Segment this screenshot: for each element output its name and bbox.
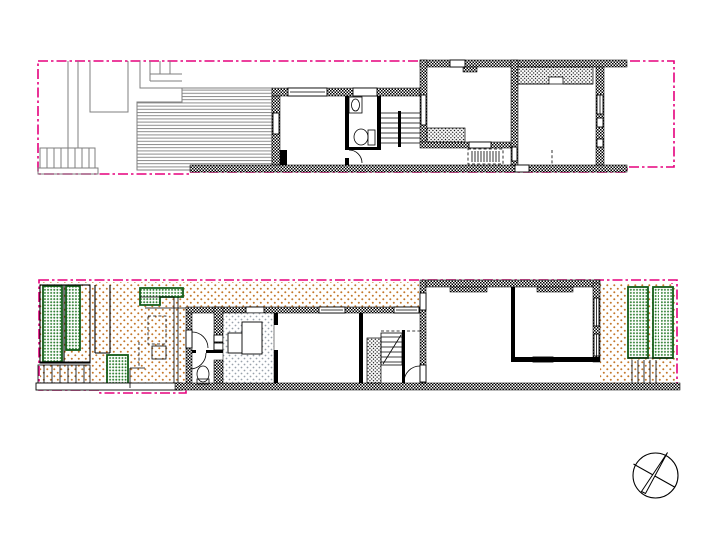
door-swing-arc [404, 366, 420, 382]
toilet-bowl [354, 129, 368, 145]
radiator-symbol [468, 149, 503, 164]
front-door-opening [186, 330, 192, 348]
staircase-upper [381, 111, 420, 147]
wc-fixtures [190, 353, 209, 384]
architectural-plan-drawing [0, 0, 720, 540]
kitchen-counter [427, 128, 465, 142]
roof-terrace [518, 67, 593, 84]
ground-floor-plan [36, 280, 680, 393]
north-arrow-compass [633, 453, 678, 499]
stair-direction-line [383, 335, 401, 364]
first-floor-plan [38, 60, 674, 174]
chimney-breast [367, 338, 381, 383]
north-needle-icon [642, 453, 668, 494]
door-swing-arc [349, 150, 362, 163]
front-door-swing-arc [192, 332, 208, 348]
staircase-lower [381, 331, 420, 382]
bathroom-fixtures [349, 97, 375, 163]
stair-handrail [398, 111, 401, 147]
drawing-sheet [0, 0, 720, 540]
garden-steps-upper [38, 148, 98, 174]
toilet-cistern [368, 130, 375, 145]
door-swing-arc [190, 353, 206, 369]
rear-garden-upper [38, 61, 272, 174]
toilet-bowl [197, 366, 209, 382]
timber-decking [137, 88, 272, 170]
internal-walls-upper [280, 96, 381, 165]
outbuilding-floor [223, 313, 274, 383]
